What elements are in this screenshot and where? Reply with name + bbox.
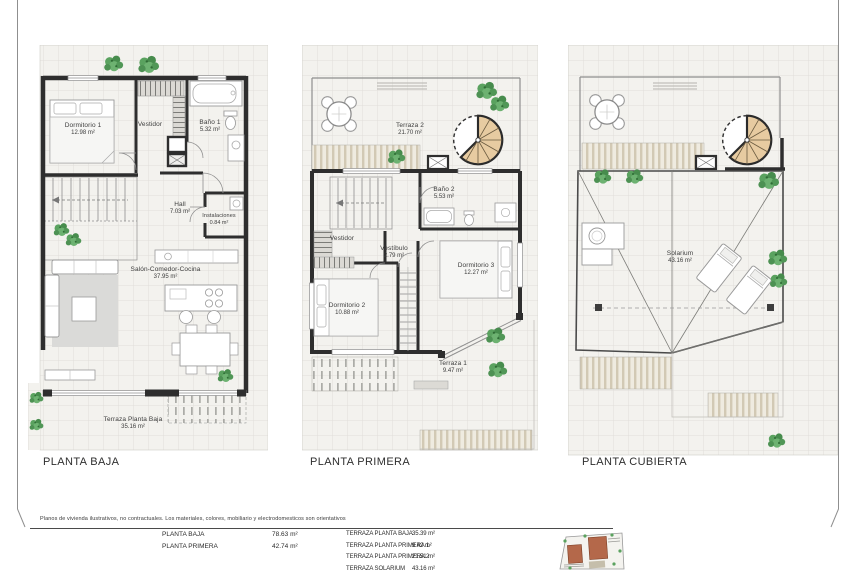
plan-title-planta-cubierta: PLANTA CUBIERTA	[582, 456, 687, 468]
wardrobe-hatch	[314, 257, 354, 268]
summary-row: TERRAZA PLANTA PRIMERA 1 9.42 m²	[346, 543, 435, 555]
summary-value: 9.42 m²	[412, 543, 432, 549]
toilet	[464, 211, 474, 226]
wardrobe-hatch	[138, 81, 184, 96]
wood-deck	[708, 393, 778, 417]
terrace-step	[414, 381, 448, 389]
wardrobe-hatch	[173, 96, 185, 140]
bed	[440, 241, 512, 298]
vent-shaft	[696, 156, 716, 169]
summary-row: TERRAZA SOLARIUM 43.16 m²	[346, 566, 435, 577]
plan-title-planta-primera: PLANTA PRIMERA	[310, 456, 410, 468]
summary-label: PLANTA PRIMERA	[162, 543, 272, 550]
planta-primera-drawing	[302, 45, 538, 455]
wood-deck	[582, 143, 704, 169]
summary-value: 43.16 m²	[412, 566, 435, 572]
bed	[50, 100, 114, 163]
summary-value: 21.51 m²	[412, 554, 435, 560]
terrace-pergola-hatch	[312, 357, 398, 391]
round-table	[590, 95, 625, 130]
disclaimer-text: Planos de vivienda ilustrativos, no cont…	[40, 516, 346, 522]
summary-label: TERRAZA PLANTA BAJA	[346, 531, 412, 537]
summary-value: 35.39 m²	[412, 531, 435, 537]
floor-plan-planta-primera: Terraza 2 21.70 m² Baño 2 5.53 m² Vestid…	[302, 45, 538, 455]
site-plan-thumbnail	[556, 531, 628, 572]
terrace-pergola-hatch	[168, 395, 246, 423]
plan-sheet: { "document": { "disclaimer": "Planos de…	[0, 0, 850, 572]
planta-cubierta-drawing	[568, 45, 838, 460]
summary-value: 78.63 m²	[272, 531, 298, 538]
round-table	[322, 97, 357, 132]
bathtub	[424, 208, 454, 225]
plan-title-planta-baja: PLANTA BAJA	[43, 456, 119, 468]
vent-shaft	[428, 156, 448, 169]
sink	[228, 135, 244, 161]
area-summary-left: PLANTA BAJA 78.63 m² PLANTA PRIMERA 42.7…	[162, 531, 298, 554]
summary-value: 42.74 m²	[272, 543, 298, 550]
floor-plan-planta-cubierta: Solarium 43.16 m²	[568, 45, 838, 460]
bathtub	[190, 81, 242, 106]
summary-label: TERRAZA SOLARIUM	[346, 566, 412, 572]
summary-row: PLANTA PRIMERA 42.74 m²	[162, 543, 298, 555]
kitchen-counter	[155, 250, 238, 263]
spiral-staircase	[723, 116, 772, 165]
summary-row: PLANTA BAJA 78.63 m²	[162, 531, 298, 543]
area-summary-right: TERRAZA PLANTA BAJA 35.39 m² TERRAZA PLA…	[346, 531, 435, 577]
summary-row: TERRAZA PLANTA BAJA 35.39 m²	[346, 531, 435, 543]
shaft-boxes	[168, 137, 186, 166]
spiral-staircase	[454, 116, 503, 165]
summary-label: PLANTA BAJA	[162, 531, 272, 538]
planta-baja-drawing	[28, 45, 268, 455]
glass-wall	[43, 390, 246, 397]
floor-plan-planta-baja: Dormitorio 1 12.98 m² Vestidor Baño 1 5.…	[28, 45, 268, 455]
summary-label: TERRAZA PLANTA PRIMERA 2	[346, 554, 412, 560]
summary-row: TERRAZA PLANTA PRIMERA 2 21.51 m²	[346, 554, 435, 566]
summary-label: TERRAZA PLANTA PRIMERA 1	[346, 543, 412, 549]
wardrobe-hatch	[314, 231, 332, 259]
washing-machine	[230, 197, 243, 210]
toilet	[224, 111, 237, 130]
bed	[314, 279, 378, 336]
wood-deck	[420, 430, 532, 450]
wood-deck	[580, 357, 672, 389]
sink	[495, 203, 516, 222]
